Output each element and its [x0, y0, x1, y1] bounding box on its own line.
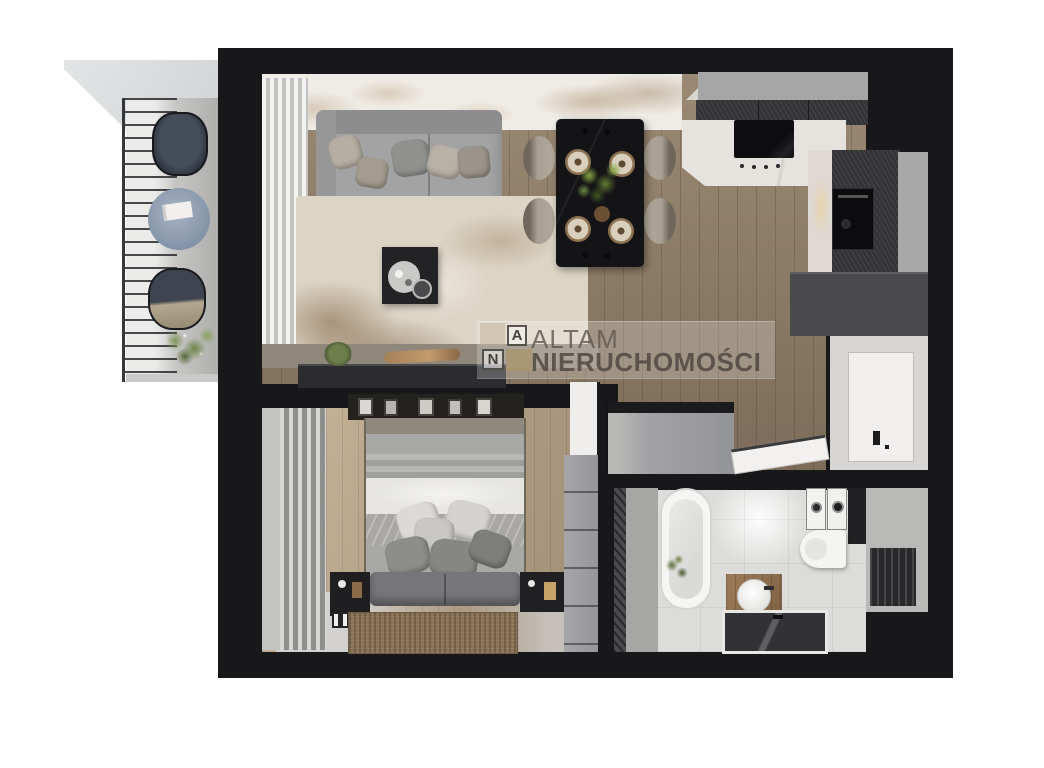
sink-faucet [764, 586, 774, 590]
dining-chair-right-2 [644, 198, 676, 244]
bedroom-window-sliver [262, 408, 280, 650]
washing-machine-2 [827, 488, 847, 530]
sofa-pillow-3 [390, 138, 433, 179]
wall-bottom [218, 652, 953, 678]
bedroom-wardrobe [564, 455, 598, 652]
nightstand-left-cup [338, 580, 346, 588]
bed-blanket-striped [366, 454, 524, 478]
radiator [870, 548, 916, 606]
place-setting-4 [608, 218, 634, 244]
balcony-chair-top [152, 112, 208, 176]
dining-chair-left-2 [523, 198, 555, 244]
cooktop-knob-3 [764, 165, 768, 169]
watermark-logo-square-tan [506, 349, 532, 371]
nightstand-left [330, 572, 370, 616]
oven-window [841, 219, 851, 229]
bathroom-door-hinge-hatch [614, 488, 626, 652]
balcony-edge-strip [126, 374, 222, 382]
dining-centerpiece-plant [573, 156, 627, 212]
oven [832, 188, 874, 250]
table-cutlery-dot-4 [604, 253, 610, 259]
shelf-frame-5 [476, 398, 492, 416]
bench-split [444, 574, 446, 604]
nightstand-left-decor [352, 582, 362, 598]
bathtub [660, 488, 712, 610]
cooktop-knob-4 [776, 164, 780, 168]
hall-cabinet [606, 402, 734, 474]
entrance-door-handle [873, 431, 880, 445]
cooktop-knob-1 [740, 164, 744, 168]
bathroom-door-strip [614, 488, 658, 652]
washing-machine-1 [806, 488, 826, 530]
toilet [800, 530, 846, 568]
bedroom-picture-shelf [348, 394, 524, 420]
washer-door-2 [832, 501, 844, 513]
sofa-pillow-5 [457, 145, 492, 180]
kitchen-backsplash-marble [808, 150, 834, 276]
watermark-logo-square-texture [480, 323, 505, 346]
bedroom-rug [348, 612, 518, 654]
sofa-backrest [316, 110, 502, 134]
bed-blanket-gray [366, 434, 524, 454]
bathroom-tall-cabinet-dark [848, 488, 866, 544]
hall-cabinet-top-edge [608, 402, 734, 413]
vessel-sink [737, 579, 771, 613]
nightstand-right-book [544, 582, 556, 600]
logo-letter-a-text: A [512, 327, 523, 344]
bed-head-band [366, 418, 524, 434]
shelf-frame-2 [384, 399, 398, 416]
kitchen-upper-cabinet-top [698, 72, 868, 102]
wall-right [928, 48, 953, 678]
bed-duvet-white [366, 478, 524, 514]
dining-chair-left-1 [523, 136, 555, 180]
shelf-frame-3 [418, 398, 434, 416]
sofa-pillow-2 [354, 155, 391, 190]
wall-left [218, 48, 262, 678]
shelf-frame-1 [358, 398, 373, 416]
coffee-table-tray-small [412, 279, 432, 299]
tv-console [298, 364, 506, 388]
cooktop-knob-2 [752, 165, 756, 169]
dining-chair-right-1 [644, 136, 676, 180]
wall-top [218, 48, 953, 74]
console-plant [324, 342, 352, 366]
shelf-frame-4 [448, 399, 462, 416]
wall-top-right-block [866, 74, 928, 152]
floor-plan-canvas: A N ALTAM NIERUCHOMOŚCI [0, 0, 1044, 768]
watermark-brand-subtitle: NIERUCHOMOŚCI [531, 347, 761, 378]
entrance-door-lock-dot [885, 445, 889, 449]
washer-door-1 [811, 502, 822, 513]
nightstand-right-cup [528, 580, 535, 587]
table-cutlery-dot-1 [582, 128, 588, 134]
table-cutlery-dot-2 [604, 129, 610, 135]
coffee-table [382, 247, 438, 304]
table-cutlery-dot-3 [582, 252, 588, 258]
bathroom-plant [660, 550, 694, 588]
toilet-bowl [805, 538, 827, 560]
entrance-door [848, 352, 914, 462]
nightstand-right [520, 572, 564, 612]
tray-cup-2 [405, 279, 412, 286]
kitchen-worktop-block [790, 272, 928, 336]
kitchen-cooktop [734, 120, 794, 158]
watermark-logo-letter-a: A [507, 325, 527, 346]
shower-drain [773, 615, 783, 619]
balcony-plant [156, 320, 220, 372]
bed-foot-bench [370, 572, 520, 606]
kitchen-cabinet-side-panel [898, 152, 928, 274]
bedroom-curtains [280, 408, 326, 650]
logo-letter-n-text: N [488, 351, 499, 368]
balcony-table [148, 188, 210, 250]
dining-plant-pot [594, 206, 610, 222]
wall-bathroom-corner-block [866, 610, 928, 652]
tray-cup-1 [395, 270, 403, 278]
place-setting-3 [565, 216, 591, 242]
watermark-logo-letter-n: N [482, 349, 504, 370]
oven-handle [838, 195, 868, 198]
shower-tray [722, 610, 828, 654]
